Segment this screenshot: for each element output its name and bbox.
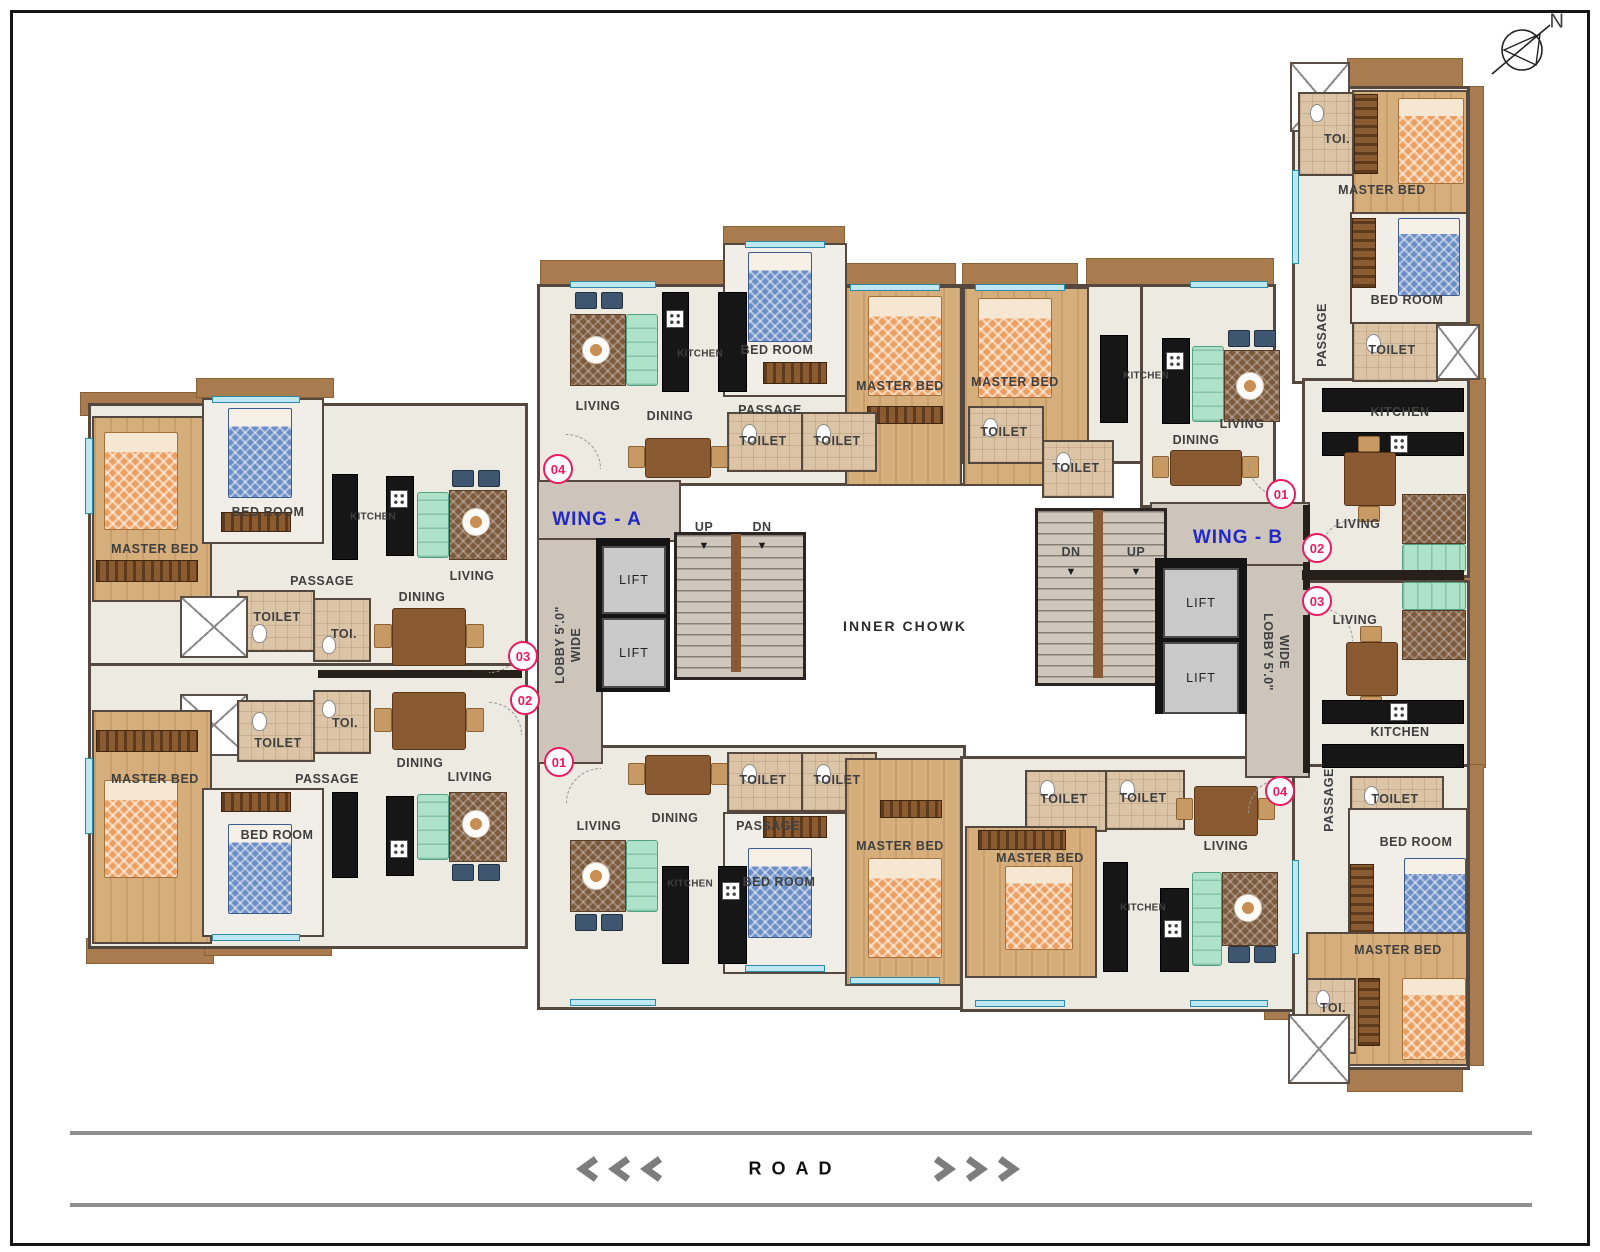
unit-number-badge-a01: 01 [544, 747, 574, 777]
room-label-living: LIVING [1336, 517, 1381, 531]
lobby-width-label: LOBBY 5'.0" [1260, 613, 1276, 691]
stove-icon [390, 490, 408, 508]
window [975, 1000, 1065, 1007]
toilet-fixture-icon [252, 624, 267, 643]
window [745, 241, 825, 248]
chair [1176, 798, 1193, 820]
sofa [1192, 346, 1224, 422]
room-label-toilet: TOILET [813, 773, 860, 787]
chair [1228, 946, 1250, 963]
room-label-toilet: TOILET [1119, 791, 1166, 805]
room-label-living: LIVING [1204, 839, 1249, 853]
toilet-room [237, 700, 315, 762]
stairs-dn-label: DN [752, 520, 771, 534]
unit-number-badge-b04: 04 [1265, 776, 1295, 806]
duct-void [1436, 324, 1480, 380]
wardrobe [96, 730, 198, 752]
window [570, 281, 656, 288]
room-label-bed-room: BED ROOM [1371, 293, 1444, 307]
bed [104, 432, 178, 530]
room-label-passage: PASSAGE [290, 574, 354, 588]
room-label-living: LIVING [448, 770, 493, 784]
wardrobe [1350, 864, 1374, 934]
room-label-passage: PASSAGE [295, 772, 359, 786]
window [1292, 860, 1299, 954]
room-label-dining: DINING [397, 756, 444, 770]
window [1190, 1000, 1268, 1007]
room-label-toilet: TOILET [1368, 343, 1415, 357]
compass-north-label: N [1550, 11, 1565, 34]
round-rug [582, 862, 610, 890]
sofa [1192, 872, 1222, 966]
room-label-master-bed: MASTER BED [1338, 183, 1426, 197]
lift-label: LIFT [1186, 596, 1216, 610]
kitchen-counter [662, 292, 689, 392]
down-arrow-icon: ▼ [1066, 566, 1077, 578]
room-label-passage: PASSAGE [736, 819, 800, 833]
unit-number-badge-b03: 03 [1302, 586, 1332, 616]
window [85, 758, 93, 834]
bed [868, 858, 942, 958]
chair [601, 914, 623, 931]
chair [478, 470, 500, 487]
room-label-passage: PASSAGE [1322, 768, 1336, 832]
road-line-bottom [70, 1203, 1532, 1207]
stove-icon [722, 882, 740, 900]
window [212, 396, 300, 403]
chair [1152, 456, 1169, 478]
room-label-toilet: TOILET [254, 736, 301, 750]
room-label-master-bed: MASTER BED [971, 375, 1059, 389]
chair [478, 864, 500, 881]
room-label-toilet: TOILET [813, 434, 860, 448]
wardrobe [763, 362, 827, 384]
lift: LIFT [602, 618, 666, 688]
wardrobe [1358, 978, 1380, 1046]
stairs-up-label: UP [695, 520, 713, 534]
sofa [1402, 544, 1466, 572]
room-label-living: LIVING [1220, 417, 1265, 431]
wardrobe [221, 792, 291, 812]
window [1292, 170, 1299, 264]
room-label-living: LIVING [577, 819, 622, 833]
round-rug [1236, 372, 1264, 400]
chair [1358, 436, 1380, 452]
wardrobe [978, 830, 1066, 850]
lobby-width-label: LOBBY 5'.0" [552, 606, 568, 684]
dining-table [645, 755, 711, 795]
wing-a-lobby-label: LOBBY 5'.0" WIDE [552, 606, 584, 684]
round-rug [462, 508, 490, 536]
room-label-living: LIVING [1333, 613, 1378, 627]
lift-label: LIFT [619, 646, 649, 660]
chair [575, 914, 597, 931]
sofa [626, 314, 658, 386]
room-label-toi: TOI. [332, 716, 358, 730]
room-label-toi: TOI. [331, 627, 357, 641]
road-label: ROAD [749, 1159, 842, 1180]
window [975, 284, 1065, 291]
duct-void [1288, 1014, 1350, 1084]
chair [711, 446, 728, 468]
down-arrow-icon: ▼ [1131, 566, 1142, 578]
room-label-master-bed: MASTER BED [111, 542, 199, 556]
chair [452, 864, 474, 881]
wall [1302, 570, 1464, 580]
room-label-bed-room: BED ROOM [743, 875, 816, 889]
room-label-bed-room: BED ROOM [232, 505, 305, 519]
chair [374, 624, 392, 648]
unit-number-badge-b02: 02 [1302, 533, 1332, 563]
sofa [417, 492, 449, 558]
room-label-toilet: TOILET [739, 773, 786, 787]
dining-table [392, 692, 466, 750]
bed [1005, 866, 1073, 950]
room-label-master-bed: MASTER BED [111, 772, 199, 786]
bed [228, 408, 292, 498]
room-label-kitchen: KITCHEN [677, 349, 723, 360]
room-label-kitchen: KITCHEN [350, 512, 396, 523]
room-label-master-bed: MASTER BED [996, 851, 1084, 865]
lift: LIFT [602, 546, 666, 614]
room-label-dining: DINING [399, 590, 446, 604]
window [745, 965, 825, 972]
room-label-kitchen: KITCHEN [1120, 903, 1166, 914]
stairs-dn-label: DN [1061, 545, 1080, 559]
bed [1404, 858, 1466, 934]
room-label-master-bed: MASTER BED [856, 839, 944, 853]
kitchen-counter [1103, 862, 1128, 972]
bed [748, 252, 812, 342]
bed [1398, 218, 1460, 296]
wardrobe [1352, 218, 1376, 288]
window [850, 284, 940, 291]
stove-icon [1390, 703, 1408, 721]
lift: LIFT [1163, 642, 1239, 714]
bed [1402, 978, 1466, 1060]
lobby-wide-label: WIDE [568, 628, 584, 662]
room-label-master-bed: MASTER BED [1354, 943, 1442, 957]
kitchen-counter [386, 796, 414, 876]
bed [748, 848, 812, 938]
room-label-kitchen: KITCHEN [1370, 725, 1429, 739]
room-label-dining: DINING [652, 811, 699, 825]
room-label-toilet: TOILET [253, 610, 300, 624]
wardrobe [96, 560, 198, 582]
chair [466, 624, 484, 648]
chair [1228, 330, 1250, 347]
room-label-living: LIVING [576, 399, 621, 413]
dining-table [645, 438, 711, 478]
unit-number-badge-a02: 02 [510, 685, 540, 715]
window [1190, 281, 1268, 288]
lobby-wide-label: WIDE [1276, 635, 1292, 669]
stove-icon [1166, 352, 1184, 370]
chair [466, 708, 484, 732]
unit-number-badge-a03: 03 [508, 641, 538, 671]
chair [452, 470, 474, 487]
toilet-fixture-icon [252, 712, 267, 731]
room-label-living: LIVING [450, 569, 495, 583]
room-label-toilet: TOILET [1371, 792, 1418, 806]
window [85, 438, 93, 514]
wall [1303, 615, 1310, 773]
room-label-toilet: TOILET [980, 425, 1027, 439]
room-label-toilet: TOILET [1052, 461, 1099, 475]
road-left-chevrons-icon [572, 1156, 676, 1182]
stove-icon [390, 840, 408, 858]
toilet-fixture-icon [1310, 104, 1324, 122]
dining-table [392, 608, 466, 666]
room-label-passage: PASSAGE [738, 403, 802, 417]
room-label-bed-room: BED ROOM [741, 343, 814, 357]
stair-divider [1093, 510, 1103, 678]
chair [628, 446, 645, 468]
room-label-passage: PASSAGE [1315, 303, 1329, 367]
room-label-toilet: TOILET [1040, 792, 1087, 806]
chair [711, 763, 728, 785]
dining-table [1346, 642, 1398, 696]
chair [575, 292, 597, 309]
room-label-kitchen: KITCHEN [1123, 371, 1169, 382]
dining-table [1170, 450, 1242, 486]
kitchen-counter [332, 792, 358, 878]
wing-a-label: WING - A [552, 509, 642, 531]
chair [1360, 626, 1382, 642]
wing-b-lobby-label: WIDE LOBBY 5'.0" [1260, 613, 1292, 691]
room-label-master-bed: MASTER BED [856, 379, 944, 393]
stove-icon [1164, 920, 1182, 938]
dining-table [1344, 452, 1396, 506]
down-arrow-icon: ▼ [757, 540, 768, 552]
room-label-toi: TOI. [1324, 132, 1350, 146]
bed [104, 780, 178, 878]
chair [628, 763, 645, 785]
wardrobe [880, 800, 942, 818]
lift-label: LIFT [1186, 671, 1216, 685]
road-line-top [70, 1131, 1532, 1135]
chair [374, 708, 392, 732]
window [850, 977, 940, 984]
room-label-dining: DINING [647, 409, 694, 423]
road-right-chevrons-icon [920, 1156, 1024, 1182]
sofa [417, 794, 449, 860]
round-rug [462, 810, 490, 838]
room-label-kitchen: KITCHEN [1370, 405, 1429, 419]
room-label-dining: DINING [1173, 433, 1220, 447]
kitchen-counter [1322, 744, 1464, 768]
room-label-bed-room: BED ROOM [241, 828, 314, 842]
carpet [1402, 494, 1466, 544]
duct-void [180, 596, 248, 658]
stair-divider [731, 534, 741, 672]
room-label-toilet: TOILET [739, 434, 786, 448]
down-arrow-icon: ▼ [699, 540, 710, 552]
chair [1254, 946, 1276, 963]
lift: LIFT [1163, 568, 1239, 638]
window [570, 999, 656, 1006]
chair [1254, 330, 1276, 347]
window [212, 934, 300, 941]
round-rug [582, 336, 610, 364]
round-rug [1234, 894, 1262, 922]
room-label-toi: TOI. [1320, 1001, 1346, 1015]
room-label-kitchen: KITCHEN [667, 879, 713, 890]
sofa [1402, 582, 1466, 610]
wardrobe [867, 406, 943, 424]
carpet [1402, 610, 1466, 660]
unit-number-badge-b01: 01 [1266, 479, 1296, 509]
stove-icon [666, 310, 684, 328]
stove-icon [1390, 435, 1408, 453]
bed [1398, 98, 1464, 184]
kitchen-counter [718, 292, 747, 392]
sofa [626, 840, 658, 912]
inner-chowk-label: INNER CHOWK [843, 618, 967, 634]
wardrobe [1354, 94, 1378, 174]
chair [601, 292, 623, 309]
lift-label: LIFT [619, 573, 649, 587]
room-label-bed-room: BED ROOM [1380, 835, 1453, 849]
stairs-up-label: UP [1127, 545, 1145, 559]
balcony-band [196, 378, 334, 398]
wing-b-label: WING - B [1193, 527, 1283, 549]
unit-number-badge-a04: 04 [543, 454, 573, 484]
floor-plan: N [0, 0, 1600, 1252]
